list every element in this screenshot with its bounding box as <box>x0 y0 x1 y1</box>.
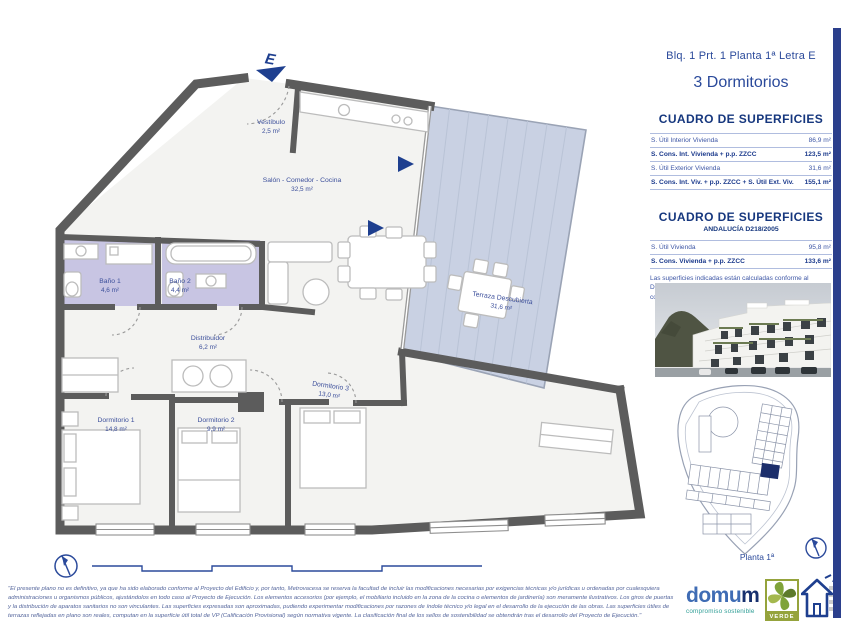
sheet-title: Blq. 1 Prt. 1 Planta 1ª Letra E <box>650 50 832 62</box>
table-row: S. Cons. Vivienda + p.p. ZZCC 133,6 m² <box>650 255 832 269</box>
surfaces-andalucia-table: S. Útil Vivienda 95,8 m² S. Cons. Vivien… <box>650 240 832 269</box>
svg-text:14,8 m²: 14,8 m² <box>105 426 127 433</box>
verde-certification-badge: VERDE <box>765 579 799 621</box>
surfaces-table-title: CUADRO DE SUPERFICIES <box>650 112 832 126</box>
surfaces-table: S. Útil Interior Vivienda 86,9 m² S. Con… <box>650 133 832 190</box>
legal-disclaimer: "El presente plano no es definitivo, ya … <box>8 585 676 622</box>
svg-text:9,9 m²: 9,9 m² <box>207 426 225 433</box>
info-panel: Blq. 1 Prt. 1 Planta 1ª Letra E 3 Dormit… <box>650 40 832 302</box>
svg-text:2,5 m²: 2,5 m² <box>262 128 280 135</box>
scale-bar <box>92 566 482 571</box>
compass-icon <box>55 555 77 577</box>
svg-text:VERDE: VERDE <box>770 614 795 620</box>
svg-text:6,2 m²: 6,2 m² <box>199 344 217 351</box>
svg-text:32,5 m²: 32,5 m² <box>291 186 313 193</box>
domum-logo: domum compromiso sostenible <box>686 585 762 615</box>
surfaces-andalucia-title: CUADRO DE SUPERFICIES <box>650 210 832 224</box>
svg-text:Salón - Comedor - Cocina: Salón - Comedor - Cocina <box>263 177 342 184</box>
table-row: S. Cons. Int. Vivienda + p.p. ZZCC 123,5… <box>650 148 832 162</box>
svg-text:Dormitorio 2: Dormitorio 2 <box>197 417 234 424</box>
entrance-marker: E <box>256 50 286 82</box>
svg-text:Distribuidor: Distribuidor <box>191 335 226 342</box>
entrance-letter: E <box>264 50 278 69</box>
sheet-border-bar <box>833 28 841 618</box>
floor-plan-drawing: E Vestíbulo 2,5 m² Salón - Comedor - Coc… <box>0 0 660 600</box>
table-row: S. Útil Exterior Vivienda 31,6 m² <box>650 162 832 176</box>
surfaces-andalucia-subtitle: ANDALUCÍA D218/2005 <box>650 226 832 233</box>
building-render <box>655 283 831 377</box>
site-plan: Planta 1ª <box>661 380 835 574</box>
table-row: S. Útil Vivienda 95,8 m² <box>650 241 832 255</box>
plan-sheet: E Vestíbulo 2,5 m² Salón - Comedor - Coc… <box>0 0 851 625</box>
site-plan-caption: Planta 1ª <box>740 552 775 562</box>
svg-text:4,6 m²: 4,6 m² <box>101 287 119 294</box>
wall-block <box>238 392 264 412</box>
bedrooms-subtitle: 3 Dormitorios <box>650 74 832 92</box>
table-row: S. Útil Interior Vivienda 86,9 m² <box>650 134 832 148</box>
domum-tagline: compromiso sostenible <box>686 608 762 615</box>
unit-highlight <box>760 463 780 479</box>
compass-icon <box>806 538 826 558</box>
entrance-arrow-icon <box>256 66 286 82</box>
svg-text:4,4 m²: 4,4 m² <box>171 287 189 294</box>
svg-text:Baño 1: Baño 1 <box>99 278 121 285</box>
svg-text:Dormitorio 1: Dormitorio 1 <box>97 417 134 424</box>
svg-text:Vestíbulo: Vestíbulo <box>257 119 285 126</box>
table-row: S. Cons. Int. Viv. + p.p. ZZCC + S. Útil… <box>650 176 832 190</box>
svg-text:Baño 2: Baño 2 <box>169 278 191 285</box>
